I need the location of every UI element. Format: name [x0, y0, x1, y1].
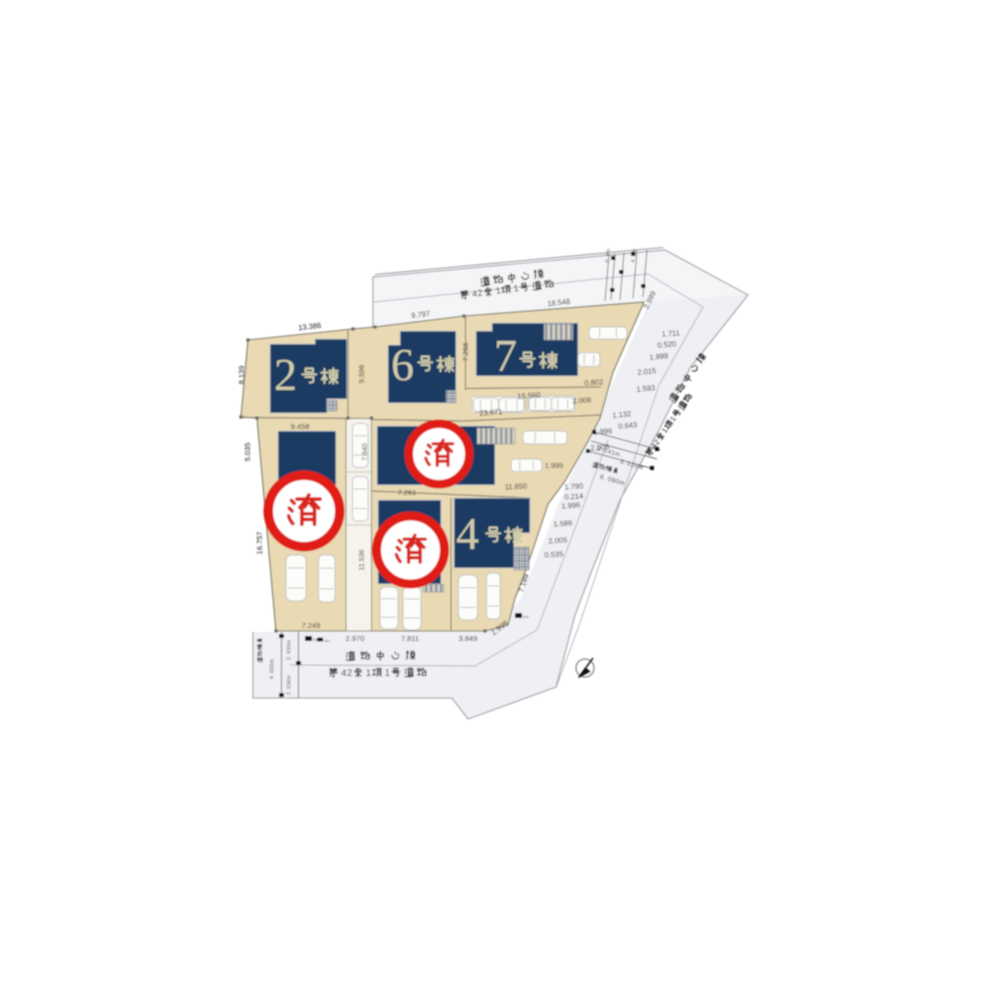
svg-text:4m: 4m [324, 638, 330, 643]
svg-text:4: 4 [456, 508, 479, 559]
svg-text:7.261: 7.261 [398, 488, 417, 497]
svg-text:2.015: 2.015 [637, 366, 656, 377]
svg-text:16.757: 16.757 [255, 532, 264, 555]
svg-text:m: m [632, 249, 639, 254]
svg-text:3.849: 3.849 [459, 634, 478, 643]
svg-text:m: m [606, 249, 613, 254]
svg-text:7.249: 7.249 [302, 621, 321, 630]
svg-text:1.999: 1.999 [649, 351, 668, 362]
svg-text:11.536: 11.536 [359, 549, 366, 570]
svg-text:m: m [286, 675, 292, 679]
svg-text:7.811: 7.811 [401, 634, 419, 643]
svg-text:7.266: 7.266 [461, 343, 470, 362]
svg-text:1: 1 [385, 668, 390, 679]
svg-text:1.790: 1.790 [564, 481, 583, 491]
svg-text:.: . [269, 675, 275, 676]
svg-text:m: m [269, 659, 275, 663]
svg-text:23.671: 23.671 [479, 407, 503, 418]
svg-text:1.995: 1.995 [545, 461, 564, 470]
svg-text:9.596: 9.596 [357, 365, 366, 384]
svg-text:5.035: 5.035 [243, 443, 252, 462]
svg-text:0.643: 0.643 [618, 420, 637, 431]
svg-text:2: 2 [274, 349, 297, 400]
svg-text:9m: 9m [313, 637, 319, 642]
svg-text:1.711: 1.711 [661, 328, 680, 339]
svg-text:2.005: 2.005 [590, 442, 609, 452]
svg-text:.: . [286, 691, 292, 692]
svg-text:7: 7 [494, 330, 517, 381]
svg-text:7.640: 7.640 [362, 443, 369, 461]
svg-text:15.560: 15.560 [517, 390, 541, 401]
svg-text:2.970: 2.970 [346, 634, 365, 643]
svg-text:8.139: 8.139 [237, 366, 246, 385]
svg-text:2.005: 2.005 [548, 535, 567, 545]
svg-text:2m: 2m [523, 614, 529, 619]
svg-text:9.458: 9.458 [291, 422, 310, 431]
svg-text:11.650: 11.650 [504, 481, 527, 491]
svg-text:1.996: 1.996 [593, 426, 612, 436]
svg-text:1.586: 1.586 [553, 518, 572, 528]
svg-text:0.802: 0.802 [584, 377, 603, 387]
svg-text:4: 4 [341, 668, 346, 679]
svg-text:.: . [286, 656, 292, 657]
svg-text:1.593: 1.593 [636, 383, 655, 394]
svg-text:6: 6 [391, 339, 414, 390]
svg-text:1: 1 [366, 668, 371, 679]
svg-text:2.006: 2.006 [572, 395, 591, 405]
svg-text:0.535: 0.535 [544, 549, 563, 559]
svg-text:13.386: 13.386 [298, 321, 322, 332]
svg-text:m: m [286, 640, 292, 644]
svg-text:m: m [637, 464, 643, 471]
svg-text:1.996: 1.996 [561, 500, 580, 510]
svg-text:1.132: 1.132 [612, 409, 631, 420]
svg-text:2: 2 [347, 668, 352, 679]
svg-text:0.520: 0.520 [657, 339, 676, 350]
